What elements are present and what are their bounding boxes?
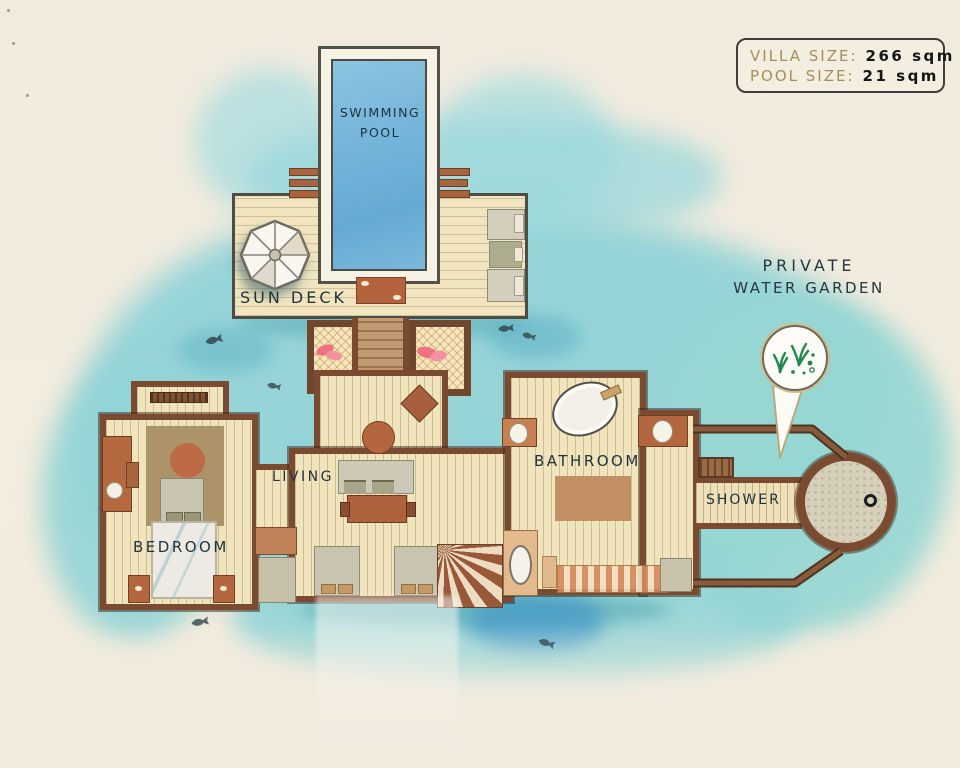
drain-icon <box>864 494 877 507</box>
sofa-cushion <box>344 480 366 494</box>
villa-size-label: VILLA SIZE: <box>750 47 858 65</box>
mat-highlight <box>361 281 369 286</box>
pool-size-value: 21 sqm <box>863 67 939 85</box>
water-deep-patch <box>178 328 273 372</box>
cushion-mark <box>418 584 433 594</box>
pool-steps-left <box>289 168 321 201</box>
seaweed-icon <box>764 327 826 389</box>
pool-steps-right <box>438 168 470 201</box>
basin-bowl <box>509 423 528 444</box>
paper-fade <box>0 626 960 768</box>
lounger-pillow <box>514 276 524 296</box>
cabinet-top <box>255 527 297 555</box>
fence-rail-bottom <box>693 551 841 583</box>
lounger-pillow <box>514 247 523 262</box>
striped-rug <box>557 565 669 593</box>
bedroom-ottoman <box>170 443 205 478</box>
private-water-garden-label: PRIVATE WATER GARDEN <box>714 256 904 297</box>
water-garden-callout <box>762 325 828 391</box>
fish-icon <box>496 322 515 335</box>
fish-icon <box>265 379 283 392</box>
toilet <box>509 545 532 585</box>
bath-bench <box>660 558 692 592</box>
sofa-cushion <box>372 480 394 494</box>
bathroom-rug <box>555 476 631 521</box>
bath-pillow <box>542 556 557 588</box>
cushion-mark <box>401 584 416 594</box>
villa-floor-plan: SWIMMING POOL SUN DECK <box>0 0 960 768</box>
paper-speck <box>26 94 29 97</box>
cushion-mark <box>321 584 336 594</box>
table-handle <box>340 502 350 517</box>
cabinet-bottom <box>258 557 296 603</box>
swimming-pool <box>318 46 440 284</box>
living-label: LIVING <box>272 469 334 485</box>
bed <box>151 521 217 599</box>
swimming-pool-label: SWIMMING POOL <box>330 103 430 143</box>
size-info-box: VILLA SIZE: 266 sqm POOL SIZE: 21 sqm <box>736 38 945 93</box>
deck-mat <box>356 277 406 304</box>
pool-water <box>331 59 427 271</box>
fan-staircase <box>437 544 503 608</box>
desk-chair <box>126 462 139 488</box>
coffee-table <box>347 495 407 523</box>
pool-size-label: POOL SIZE: <box>750 67 855 85</box>
alcove-bench <box>150 392 208 403</box>
shower-platform <box>796 452 896 552</box>
private-water-garden-line2: WATER GARDEN <box>714 279 904 297</box>
fish-icon <box>189 614 211 629</box>
fish-icon <box>520 329 538 343</box>
villa-size-value: 266 sqm <box>866 47 955 65</box>
pink-cushion <box>325 349 343 362</box>
mat-highlight <box>393 295 401 300</box>
cushion-mark <box>338 584 353 594</box>
fish-icon <box>203 332 225 349</box>
swimming-pool-label-line2: POOL <box>330 123 430 143</box>
bathroom-label: BATHROOM <box>534 452 641 470</box>
pool-size-row: POOL SIZE: 21 sqm <box>750 67 931 85</box>
basin-bowl <box>652 420 673 443</box>
villa-size-row: VILLA SIZE: 266 sqm <box>750 47 931 65</box>
shower-steps <box>698 457 734 478</box>
light-band <box>316 596 458 768</box>
paper-speck <box>12 42 15 45</box>
paper-speck <box>7 9 10 12</box>
fish-icon <box>536 634 558 651</box>
desk-stool <box>106 482 123 499</box>
bedroom-label: BEDROOM <box>133 538 229 556</box>
sun-deck-label: SUN DECK <box>240 288 347 307</box>
nightstand <box>128 575 150 603</box>
fence-rail-top <box>693 429 846 457</box>
private-water-garden-line1: PRIVATE <box>714 256 904 275</box>
lounger-pillow <box>514 214 524 233</box>
nightstand <box>213 575 235 603</box>
round-table <box>362 421 395 454</box>
swimming-pool-label-line1: SWIMMING <box>330 103 430 123</box>
table-handle <box>406 502 416 517</box>
shower-label: SHOWER <box>706 492 781 508</box>
